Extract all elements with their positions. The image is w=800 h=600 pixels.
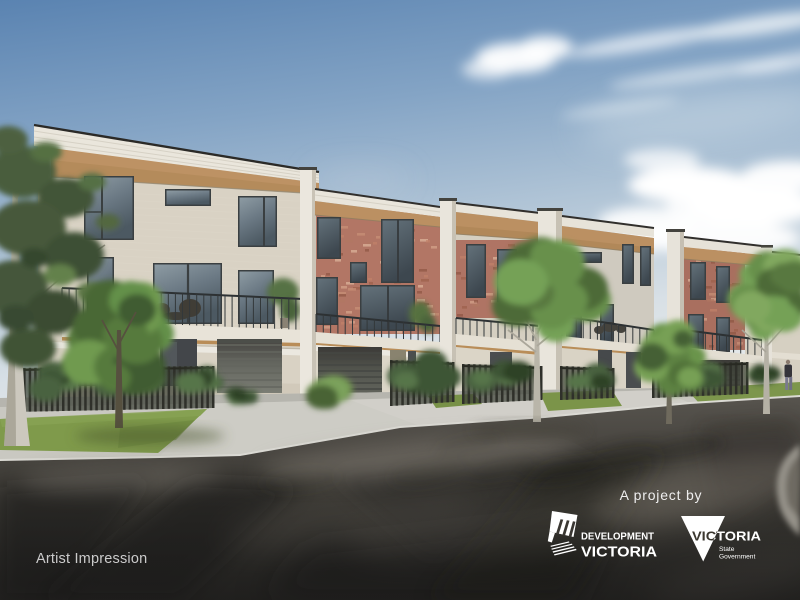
svg-text:A project by: A project by (620, 487, 703, 503)
svg-text:DEVELOPMENT: DEVELOPMENT (581, 532, 654, 543)
svg-text:VICTORIA: VICTORIA (581, 545, 657, 561)
svg-text:Artist Impression: Artist Impression (36, 551, 147, 567)
svg-text:State: State (719, 546, 735, 553)
svg-text:Government: Government (719, 554, 755, 561)
